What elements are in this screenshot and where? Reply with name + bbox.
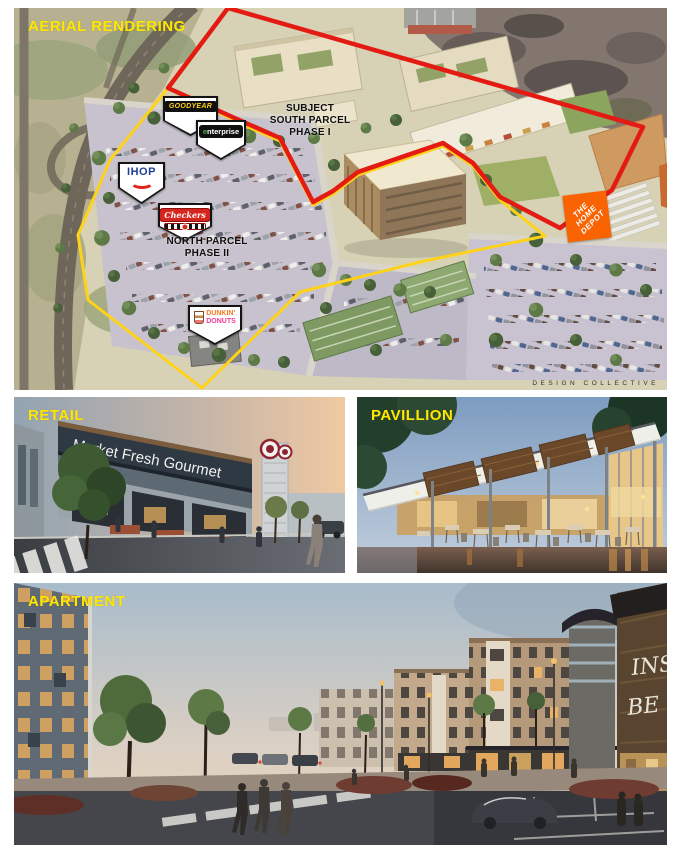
aerial-rendering-title: AERIAL RENDERING (28, 18, 186, 35)
subject-parcel-label: SUBJECT SOUTH PARCEL PHASE I (260, 103, 360, 139)
retail-rendering-image: Market Fresh Gourmet (14, 397, 345, 573)
goodyear-logo: GOODYEAR (165, 101, 216, 112)
subject-parcel-line1: SUBJECT (260, 103, 360, 115)
subject-parcel-line2: SOUTH PARCEL (260, 115, 360, 127)
dunkin-logo-line1: DUNKIN' (206, 310, 236, 318)
enterprise-pin: enterprise (196, 120, 246, 160)
home-depot-logo: THE HOME DEPOT (562, 190, 611, 242)
building-sign-line2: BE (625, 693, 661, 721)
subject-parcel-line3: PHASE I (260, 127, 360, 139)
page: { "aerial": { "label": "AERIAL RENDERING… (0, 0, 681, 858)
design-collective-credit: DESIGN COLLECTIVE (532, 380, 659, 387)
apartment-art: INS BE (14, 583, 667, 845)
building-sign-line1: INS (629, 652, 667, 681)
dunkin-logo-line2: DONUTS (206, 318, 236, 326)
north-parcel-line2: PHASE II (150, 248, 264, 260)
apartment-rendering-image: INS BE (14, 583, 667, 845)
glass-corner-building (562, 609, 622, 779)
checkers-checker-band (164, 223, 206, 230)
aerial-rendering-image: AERIAL RENDERING SUBJECT SOUTH PARCEL PH… (14, 8, 667, 390)
apartment-title: APARTMENT (28, 593, 126, 610)
checkers-logo: Checkers (159, 208, 211, 222)
ihop-pin: IHOP (118, 162, 165, 204)
north-parcel-line1: NORTH PARCEL (150, 236, 264, 248)
pavillion-rendering-image: PAVILLION (357, 397, 667, 573)
dunkin-donuts-pin: DUNKIN' DONUTS (188, 305, 242, 345)
enterprise-logo: enterprise (199, 125, 243, 138)
left-foreground-building (14, 583, 92, 791)
ihop-smile-icon (130, 175, 154, 189)
retail-title: RETAIL (28, 407, 84, 424)
coffee-cup-icon (194, 311, 204, 324)
pavillion-title: PAVILLION (371, 407, 453, 424)
north-parcel-label: NORTH PARCEL PHASE II (150, 236, 264, 260)
